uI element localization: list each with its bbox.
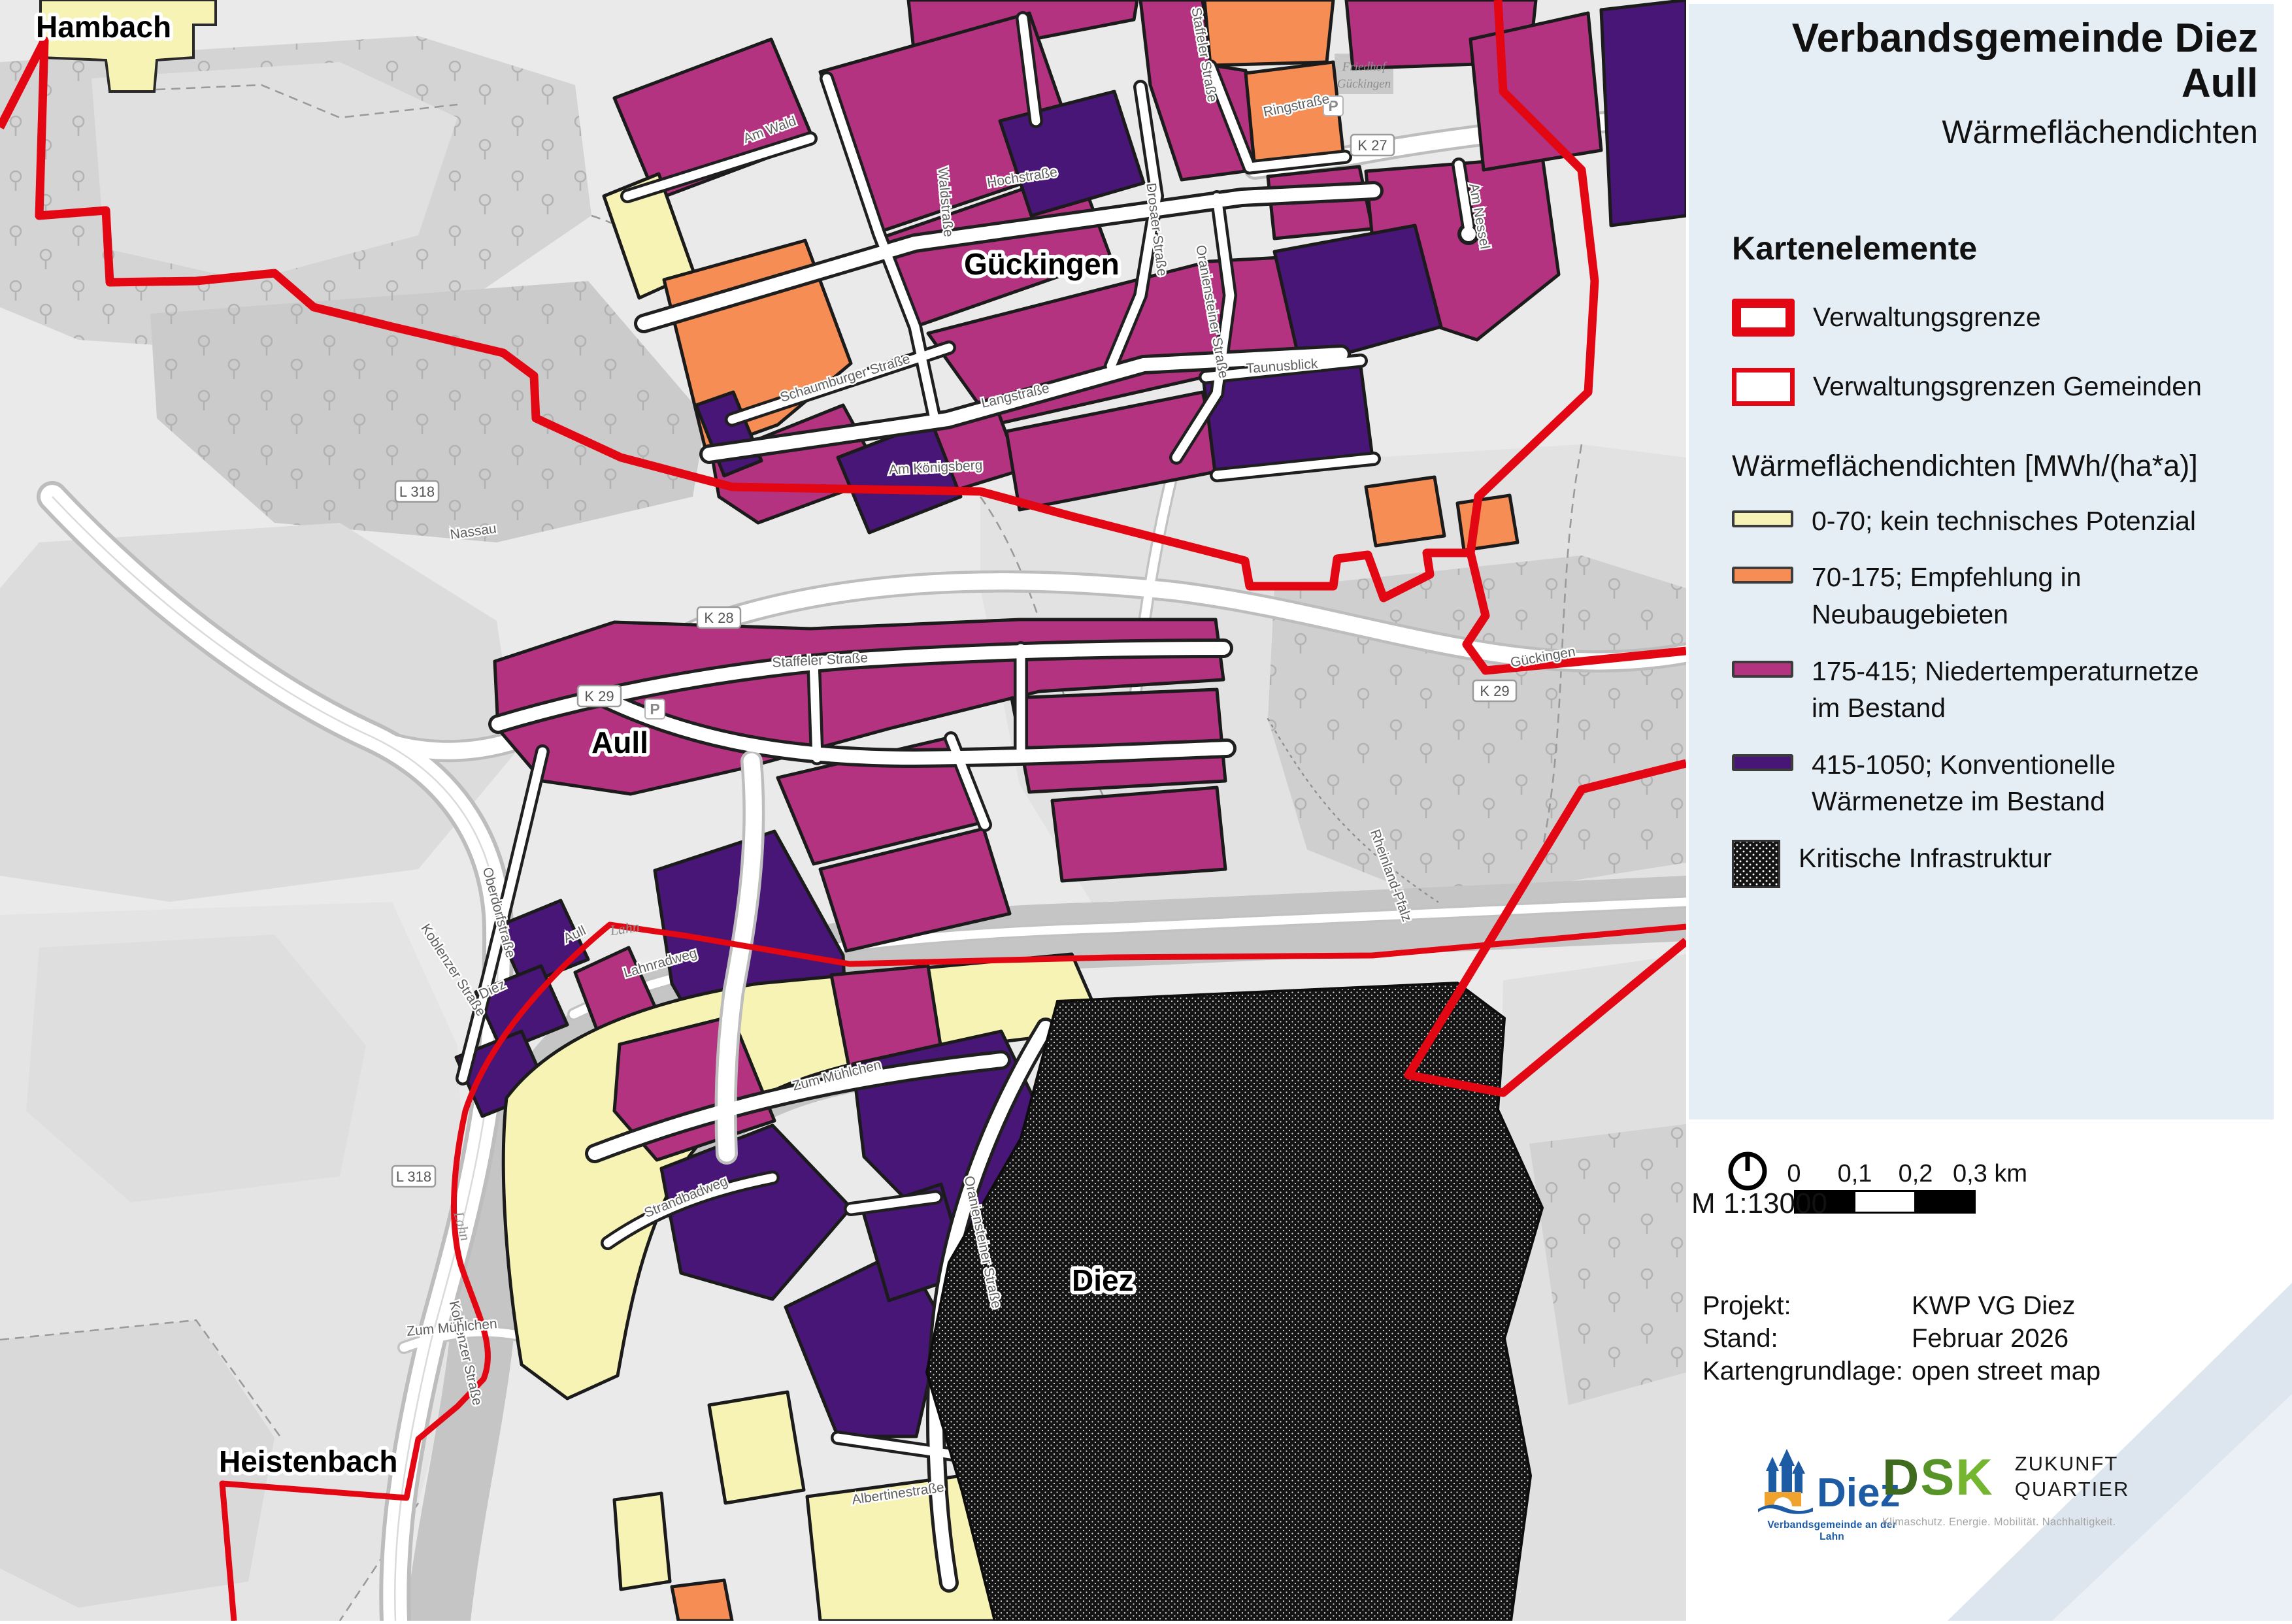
dsk-logo-line2: QUARTIER [2015,1477,2130,1502]
legend-item-label: 415-1050; Konventionelle Wärmenetze im B… [1812,746,2230,820]
svg-text:L 318: L 318 [396,1168,431,1185]
svg-text:L 318: L 318 [399,484,435,500]
yellow-swatch [1732,510,1793,527]
gemeindegrenze-swatch [1732,368,1795,406]
svg-text:K 29: K 29 [1480,683,1509,699]
dsk-logo: DSK ZUKUNFT QUARTIER Klimaschutz. Energi… [1882,1450,2059,1529]
critical-infrastructure-swatch [1732,840,1780,888]
project-key: Stand: [1702,1322,1912,1355]
legend-item-heat-415-1050: 415-1050; Konventionelle Wärmenetze im B… [1732,746,2258,820]
dsk-logo-line1: ZUKUNFT [2015,1451,2130,1477]
project-key: Kartengrundlage: [1702,1355,1912,1387]
parking-icon: P [645,699,665,719]
scale-tick: 0,3 km [1953,1160,2027,1188]
place-label-aull: Aull [591,725,648,759]
magenta-swatch [1732,661,1793,678]
scale-tick: 0,2 [1899,1160,1933,1188]
scale-ratio: M 1:13000 [1691,1187,1827,1220]
scale-tick: 0 [1787,1160,1801,1188]
dsk-logo-tagline: Klimaschutz. Energie. Mobilität. Nachhal… [1882,1516,2059,1529]
dsk-logo-name: DSK [1882,1451,1994,1502]
orange-swatch [1732,567,1793,584]
north-arrow-icon [1724,1146,1771,1193]
svg-text:K 28: K 28 [704,610,733,626]
legend-item-label: Verwaltungsgrenze [1813,302,2041,333]
place-label-gueckingen: Gückingen [964,247,1120,281]
place-label-diez: Diez [1072,1263,1134,1297]
svg-text:Gückingen: Gückingen [1337,77,1391,91]
legend-item-heat-175-415: 175-415; Niedertemperaturnetze im Bestan… [1732,653,2258,727]
purple-swatch [1732,754,1793,771]
project-key: Projekt: [1702,1289,1912,1322]
legend-item-label: Verwaltungsgrenzen Gemeinden [1813,371,2202,402]
legend-item-label: 0-70; kein technisches Potenzial [1812,503,2196,540]
map-subtitle: Wärmeflächendichten [1732,113,2258,151]
legend-heading: Kartenelemente [1732,229,2258,267]
project-value: KWP VG Diez [1912,1289,2075,1322]
project-value: open street map [1912,1355,2101,1387]
legend-item-label: Kritische Infrastruktur [1799,840,2051,877]
legend-item-heat-0-70: 0-70; kein technisches Potenzial [1732,503,2258,540]
map-canvas: P P L 318 L 318 K 28 K 29 K 29 K 27 Am W… [0,0,1686,1621]
legend-item-verwaltungsgrenzen-gemeinden: Verwaltungsgrenzen Gemeinden [1732,368,2258,406]
map-info-box: 0 0,1 0,2 0,3 km M 1:13000 Projekt: KWP … [1686,1119,2292,1621]
legend-item-heat-70-175: 70-175; Empfehlung in Neubaugebieten [1732,559,2258,633]
svg-text:Friedhof: Friedhof [1342,60,1387,74]
svg-text:K 27: K 27 [1357,137,1387,154]
map-title-line2: Aull [1732,61,2258,106]
legend-item-verwaltungsgrenze: Verwaltungsgrenze [1732,299,2258,337]
place-label-hambach: Hambach [36,10,171,44]
legend-item-label: 70-175; Empfehlung in Neubaugebieten [1812,559,2230,633]
legend-panel: Verbandsgemeinde Diez Aull Wärmeflächend… [1689,4,2274,1119]
verwaltungsgrenze-swatch [1732,299,1795,337]
svg-text:P: P [650,701,659,718]
scale-tick: 0,1 [1838,1160,1872,1188]
project-info: Projekt: KWP VG Diez Stand: Februar 2026… [1702,1289,2101,1387]
legend-item-kritische-infrastruktur: Kritische Infrastruktur [1732,840,2258,888]
place-label-heistenbach: Heistenbach [219,1444,398,1478]
heat-legend-heading: Wärmeflächendichten [MWh/(ha*a)] [1732,449,2258,483]
project-value: Februar 2026 [1912,1322,2068,1355]
map-title-line1: Verbandsgemeinde Diez [1732,16,2258,61]
legend-item-label: 175-415; Niedertemperaturnetze im Bestan… [1812,653,2230,727]
svg-text:K 29: K 29 [584,688,614,704]
